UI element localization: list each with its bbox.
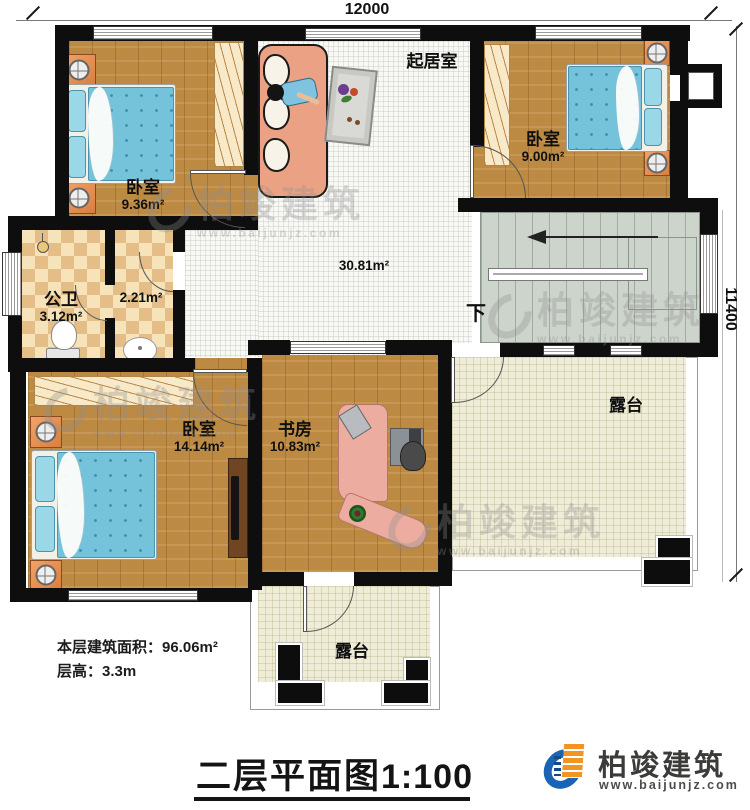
- window: [68, 590, 198, 601]
- faucet-icon: [138, 346, 142, 350]
- window: [2, 252, 22, 316]
- room-area: 3.12m²: [30, 309, 92, 324]
- watermark-url: www.baijunjz.com: [537, 332, 705, 346]
- room-name: 书房: [258, 420, 332, 439]
- stair-direction-line: [546, 236, 658, 238]
- floor-area-note: 本层建筑面积：96.06m²: [57, 636, 218, 657]
- room-area: 14.14m²: [162, 439, 236, 454]
- wall: [670, 101, 688, 212]
- sofa-cushion: [263, 138, 290, 172]
- dimension-line-top: [16, 20, 732, 21]
- room-label-terrace-bottom: 露台: [324, 642, 380, 661]
- desk-chair: [400, 441, 426, 471]
- wall: [105, 318, 115, 358]
- door-leaf: [451, 357, 455, 403]
- title-scale: 1:100: [381, 758, 473, 797]
- watermark: 柏竣建筑 www.baijunjz.com: [46, 386, 261, 440]
- tv-icon: [231, 476, 239, 540]
- logo-building: [562, 744, 584, 778]
- dimension-width: 12000: [322, 1, 412, 19]
- room-name: 卧室: [508, 130, 578, 149]
- hallway-floor: [185, 230, 258, 357]
- door-leaf: [193, 369, 247, 373]
- door-leaf: [303, 586, 307, 632]
- pillow: [644, 108, 662, 146]
- watermark-url: www.baijunjz.com: [437, 544, 605, 558]
- room-name: 起居室: [392, 52, 472, 71]
- watermark-url: www.baijunjz.com: [93, 426, 261, 440]
- room-area-living: 30.81m²: [326, 258, 402, 273]
- room-label-bathroom: 公卫 3.12m²: [30, 290, 92, 324]
- floor-height-note: 层高：3.3m: [57, 660, 136, 681]
- study-opening-threshold: [290, 341, 386, 354]
- lamp-icon: [69, 60, 90, 81]
- wall: [105, 230, 115, 285]
- room-area-washroom: 2.21m²: [112, 290, 170, 305]
- wall: [244, 41, 258, 175]
- room-label-terrace-right: 露台: [598, 396, 654, 415]
- watermark: 柏竣建筑 www.baijunjz.com: [390, 504, 605, 558]
- room-name: 公卫: [30, 290, 92, 309]
- lamp-icon: [647, 43, 668, 64]
- brand-logo-icon: [545, 742, 593, 796]
- wall: [173, 290, 185, 358]
- stair-handrail-line: [493, 273, 643, 275]
- window: [93, 26, 213, 40]
- table-item: [355, 120, 360, 125]
- door-threshold: [304, 572, 354, 586]
- nightstand: [644, 150, 670, 176]
- light-fixture-icon: [37, 241, 49, 253]
- room-label-study: 书房 10.83m²: [258, 420, 332, 454]
- watermark: 柏竣建筑 www.baijunjz.com: [490, 292, 705, 346]
- flower-icon: [338, 84, 349, 95]
- room-area: 9.00m²: [508, 149, 578, 164]
- nightstand: [644, 40, 670, 66]
- table-item: [347, 117, 352, 122]
- wall: [354, 572, 452, 586]
- corner-pillar: [278, 683, 322, 703]
- pillow: [68, 136, 86, 178]
- watermark-text: 柏竣建筑: [197, 186, 365, 223]
- watermark-text: 柏竣建筑: [93, 386, 261, 423]
- room-label-bedroom-topright: 卧室 9.00m²: [508, 130, 578, 164]
- wall: [700, 212, 718, 234]
- plant-icon: [349, 505, 366, 522]
- watermark-url: www.baijunjz.com: [197, 226, 365, 240]
- stair-arrow-icon: [527, 230, 546, 244]
- lamp-icon: [647, 153, 668, 174]
- pillow: [35, 506, 55, 552]
- title-text: 二层平面图: [196, 748, 381, 799]
- nightstand: [30, 560, 62, 590]
- wall: [55, 25, 69, 218]
- door-leaf: [470, 145, 474, 198]
- pillow: [35, 456, 55, 502]
- floorplan-canvas: 起居室 30.81m² 卧室 9.36m² 卧室 9.00m² 公卫 3.12m…: [0, 0, 750, 810]
- dimension-tick: [26, 6, 40, 20]
- dimension-height: 11400: [721, 269, 739, 349]
- drawing-title: 二层平面图 1:100: [196, 748, 473, 799]
- watermark: 柏竣建筑 www.baijunjz.com: [150, 186, 365, 240]
- room-area: 10.83m²: [258, 439, 332, 454]
- wall: [248, 572, 304, 586]
- coffee-table: [324, 66, 378, 146]
- door-leaf: [190, 170, 246, 174]
- corner-pillar: [644, 560, 690, 584]
- pillow: [644, 68, 662, 106]
- lamp-icon: [69, 188, 90, 209]
- flower-icon: [350, 88, 358, 96]
- window: [535, 26, 642, 40]
- corner-pillar: [384, 683, 428, 703]
- wardrobe: [214, 42, 244, 167]
- bay-window: [688, 72, 714, 100]
- wall: [470, 25, 484, 147]
- window: [610, 345, 642, 356]
- brand-url: www.baijunjz.com: [599, 778, 739, 792]
- toilet-bowl: [51, 320, 77, 350]
- lamp-icon: [36, 565, 57, 586]
- stairs-down-label: 下: [462, 303, 490, 325]
- wall: [248, 340, 290, 355]
- person-head: [267, 84, 284, 101]
- watermark-text: 柏竣建筑: [437, 504, 605, 541]
- room-label-living: 起居室: [392, 52, 472, 71]
- window: [305, 28, 421, 40]
- wall: [10, 372, 26, 590]
- watermark-text: 柏竣建筑: [537, 292, 705, 329]
- window: [543, 345, 575, 356]
- extension-line: [722, 210, 723, 582]
- logo-dots: [554, 756, 561, 776]
- pillow: [68, 90, 86, 132]
- dimension-tick: [704, 6, 718, 20]
- title-underline: [194, 797, 470, 801]
